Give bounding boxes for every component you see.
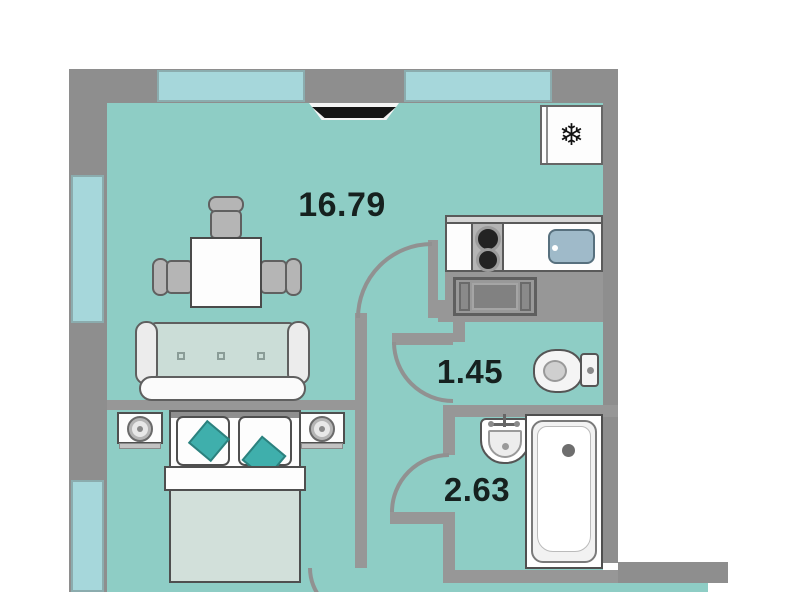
wall-kitchen-step bbox=[438, 300, 447, 322]
vent-cap-left bbox=[459, 282, 470, 311]
snowflake-icon: ❄ bbox=[542, 107, 601, 165]
window-left-lower bbox=[71, 480, 104, 592]
nightstand-right-edge bbox=[301, 443, 343, 449]
nightstand-left-edge bbox=[119, 443, 161, 449]
window-top-left bbox=[157, 70, 305, 102]
chair-left-seat bbox=[166, 260, 193, 294]
wall-bath-door-stub bbox=[443, 405, 455, 455]
chair-right-backrest bbox=[285, 258, 302, 296]
floor-bottom-strip bbox=[107, 583, 708, 592]
wall-bath-left-lower bbox=[443, 524, 455, 570]
chair-right-seat bbox=[260, 260, 287, 294]
radiator-fill bbox=[312, 107, 396, 118]
bathtub-icon bbox=[525, 414, 603, 569]
lamp-left-icon bbox=[127, 416, 153, 442]
faucet-handle-right bbox=[514, 421, 520, 427]
sofa-seat bbox=[139, 376, 306, 401]
chair-top-seat bbox=[210, 210, 242, 239]
sofa-tuft-3 bbox=[257, 352, 265, 360]
bed-sheet-band bbox=[164, 466, 306, 491]
sofa-tuft-1 bbox=[177, 352, 185, 360]
dining-table-icon bbox=[190, 237, 262, 308]
lamp-right-icon bbox=[309, 416, 335, 442]
wall-wc-left-stub bbox=[453, 320, 465, 342]
fridge-icon: ❄ bbox=[540, 105, 603, 165]
toilet-tank-button bbox=[587, 367, 594, 374]
door-leaf-bath bbox=[390, 512, 455, 524]
door-leaf-main-room bbox=[428, 240, 438, 318]
floorplan-canvas: ❄ bbox=[0, 0, 800, 592]
kitchen-sink-icon bbox=[548, 229, 595, 264]
wall-bottom-outer bbox=[618, 562, 728, 583]
sofa-tuft-2 bbox=[217, 352, 225, 360]
bed-blanket bbox=[169, 489, 301, 583]
window-top-right bbox=[404, 70, 552, 102]
toilet-bowl-inner bbox=[543, 360, 567, 382]
faucet-handle-left bbox=[488, 421, 494, 427]
wall-bottom-inner bbox=[443, 570, 618, 583]
toilet-tank bbox=[580, 353, 599, 387]
wall-hall-vertical bbox=[355, 313, 367, 568]
vent-cap-right bbox=[520, 282, 531, 311]
door-leaf-wc bbox=[392, 333, 453, 345]
vent-shaft-icon bbox=[453, 277, 537, 316]
stove-burner-bottom bbox=[476, 248, 500, 272]
sink-tap-dot bbox=[552, 245, 558, 251]
room-label-bath: 2.63 bbox=[435, 471, 519, 509]
wall-bedroom-partition bbox=[107, 400, 355, 410]
window-left-upper bbox=[71, 175, 104, 323]
room-label-wc: 1.45 bbox=[430, 353, 510, 391]
vent-inner bbox=[472, 283, 518, 310]
washbasin-drain bbox=[502, 443, 509, 450]
fridge-door-line bbox=[546, 107, 548, 163]
bathtub-drain bbox=[562, 444, 575, 457]
room-label-living: 16.79 bbox=[290, 186, 394, 224]
wall-right bbox=[603, 69, 618, 563]
